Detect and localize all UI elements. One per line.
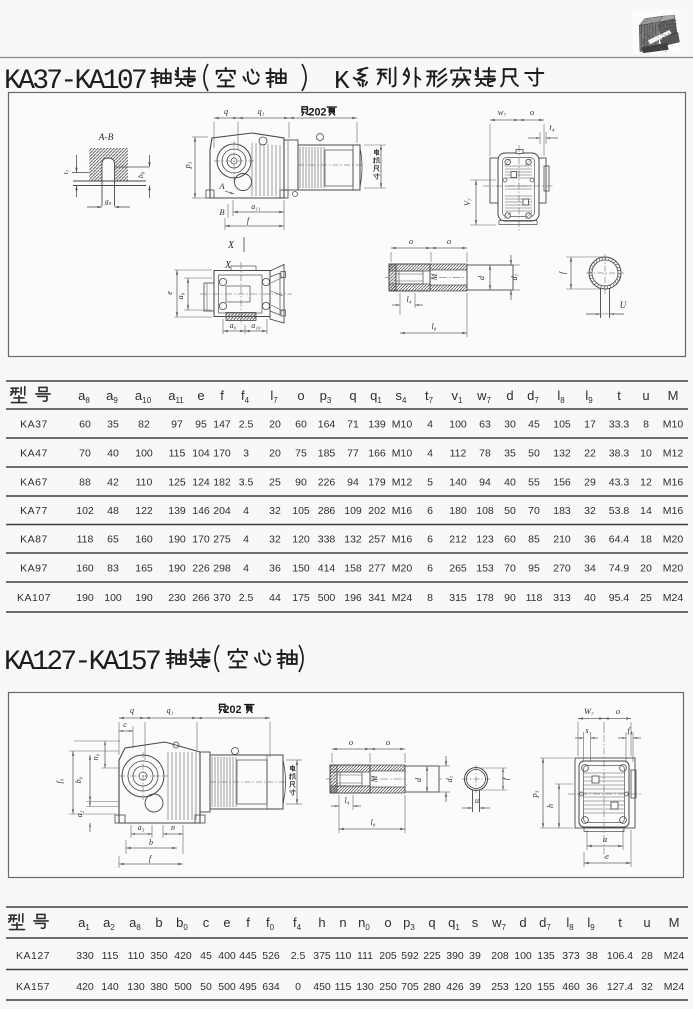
svg-text:95: 95 — [195, 418, 207, 430]
svg-text:28: 28 — [641, 950, 653, 962]
svg-text:u: u — [642, 388, 649, 403]
svg-text:225: 225 — [423, 950, 441, 962]
svg-text:c: c — [203, 915, 210, 930]
svg-text:M: M — [430, 272, 439, 281]
svg-text:2.5: 2.5 — [291, 950, 306, 962]
svg-text:375: 375 — [313, 950, 331, 962]
svg-text:110: 110 — [136, 476, 153, 488]
svg-text:M16: M16 — [663, 476, 684, 488]
svg-text:6: 6 — [427, 534, 433, 546]
svg-text:190: 190 — [76, 592, 94, 604]
svg-text:f: f — [246, 915, 250, 930]
svg-text:b: b — [155, 915, 162, 930]
svg-text:110: 110 — [335, 950, 352, 962]
svg-text:M24: M24 — [663, 592, 684, 604]
svg-text:4: 4 — [243, 505, 249, 517]
svg-text:0: 0 — [295, 981, 301, 993]
svg-text:w₇: w₇ — [498, 107, 507, 117]
svg-text:526: 526 — [262, 950, 280, 962]
svg-text:A: A — [218, 181, 225, 191]
svg-text:77: 77 — [347, 447, 359, 459]
svg-text:104: 104 — [192, 447, 210, 459]
svg-text:n₀: n₀ — [91, 753, 100, 760]
svg-text:112: 112 — [450, 447, 467, 459]
svg-text:KA97: KA97 — [20, 562, 48, 574]
svg-text:36: 36 — [269, 562, 281, 574]
svg-text:t: t — [618, 915, 622, 930]
svg-text:132: 132 — [553, 447, 571, 459]
svg-text:e: e — [605, 851, 609, 861]
svg-text:u: u — [475, 796, 479, 805]
svg-text:122: 122 — [135, 505, 153, 517]
svg-text:U: U — [620, 300, 627, 310]
svg-text:170: 170 — [192, 534, 210, 546]
svg-text:t: t — [617, 388, 621, 403]
svg-text:139: 139 — [168, 505, 186, 517]
svg-text:108: 108 — [476, 505, 494, 517]
svg-text:B: B — [219, 207, 224, 217]
svg-text:12: 12 — [640, 476, 652, 488]
svg-text:286: 286 — [318, 505, 336, 517]
svg-text:q: q — [130, 706, 134, 715]
svg-text:42: 42 — [107, 476, 119, 488]
svg-text:50: 50 — [200, 981, 212, 993]
svg-text:s: s — [585, 726, 588, 735]
svg-text:160: 160 — [76, 562, 94, 574]
svg-text:22: 22 — [584, 447, 596, 459]
svg-text:705: 705 — [401, 981, 419, 993]
svg-text:90: 90 — [504, 592, 516, 604]
svg-text:4: 4 — [427, 418, 433, 430]
svg-text:153: 153 — [476, 562, 494, 574]
svg-text:495: 495 — [239, 981, 257, 993]
svg-text:500: 500 — [174, 981, 192, 993]
svg-text:204: 204 — [213, 505, 231, 517]
svg-text:45: 45 — [528, 418, 540, 430]
svg-text:a₃: a₃ — [138, 823, 145, 832]
svg-text:2.5: 2.5 — [239, 418, 254, 430]
svg-text:40: 40 — [584, 592, 596, 604]
svg-text:t₄: t₄ — [549, 122, 554, 132]
svg-text:p₃: p₃ — [530, 790, 539, 798]
svg-text:e: e — [165, 291, 174, 295]
svg-text:q₁: q₁ — [258, 107, 265, 116]
svg-text:33.3: 33.3 — [609, 418, 630, 430]
svg-text:147: 147 — [213, 418, 231, 430]
svg-text:110: 110 — [128, 950, 145, 962]
svg-text:170: 170 — [213, 447, 231, 459]
svg-text:90: 90 — [295, 476, 307, 488]
svg-text:M12: M12 — [663, 447, 684, 459]
svg-text:70: 70 — [504, 562, 516, 574]
svg-text:414: 414 — [318, 562, 336, 574]
svg-text:95.4: 95.4 — [609, 592, 630, 604]
svg-text:M: M — [370, 774, 379, 783]
svg-text:o: o — [386, 737, 390, 747]
svg-text:120: 120 — [514, 981, 532, 993]
svg-text:180: 180 — [449, 505, 467, 517]
svg-text:u: u — [643, 915, 650, 930]
svg-text:190: 190 — [135, 592, 153, 604]
svg-text:500: 500 — [218, 981, 236, 993]
svg-text:M: M — [668, 388, 679, 403]
svg-text:V₇: V₇ — [463, 198, 472, 206]
svg-text:70: 70 — [79, 447, 91, 459]
svg-text:a₁₁: a₁₁ — [251, 202, 261, 211]
svg-text:298: 298 — [213, 562, 231, 574]
svg-text:88: 88 — [79, 476, 91, 488]
svg-text:226: 226 — [192, 562, 210, 574]
svg-text:190: 190 — [168, 534, 186, 546]
svg-text:253: 253 — [491, 981, 509, 993]
svg-text:KA127-KA157: KA127-KA157 — [4, 647, 160, 678]
svg-text:156: 156 — [553, 476, 571, 488]
svg-text:140: 140 — [101, 981, 119, 993]
svg-text:KA87: KA87 — [20, 534, 48, 546]
svg-text:164: 164 — [318, 418, 336, 430]
svg-text:2.5: 2.5 — [239, 592, 254, 604]
svg-text:115: 115 — [169, 447, 186, 459]
svg-text:KA157: KA157 — [16, 981, 50, 993]
svg-text:e: e — [223, 915, 230, 930]
svg-text:q₁: q₁ — [167, 706, 174, 715]
svg-text:48: 48 — [107, 505, 119, 517]
svg-text:o: o — [447, 236, 451, 246]
svg-text:190: 190 — [168, 562, 186, 574]
svg-text:20: 20 — [640, 562, 652, 574]
svg-text:275: 275 — [213, 534, 231, 546]
svg-text:230: 230 — [168, 592, 186, 604]
svg-text:14: 14 — [640, 505, 652, 517]
svg-text:150: 150 — [292, 562, 310, 574]
svg-text:h: h — [318, 915, 325, 930]
svg-text:4: 4 — [243, 534, 249, 546]
svg-text:l₈: l₈ — [370, 818, 375, 827]
svg-text:140: 140 — [449, 476, 467, 488]
svg-text:39: 39 — [469, 950, 481, 962]
svg-text:6: 6 — [427, 505, 433, 517]
svg-text:25: 25 — [269, 476, 281, 488]
svg-text:373: 373 — [562, 950, 580, 962]
svg-text:71: 71 — [347, 418, 359, 430]
svg-text:420: 420 — [76, 981, 94, 993]
svg-text:118: 118 — [77, 534, 94, 546]
svg-text:315: 315 — [449, 592, 467, 604]
svg-text:202: 202 — [368, 505, 386, 517]
svg-text:105: 105 — [292, 505, 310, 517]
svg-text:127.4: 127.4 — [607, 981, 633, 993]
svg-text:f₄: f₄ — [627, 726, 632, 735]
svg-text:124: 124 — [192, 476, 210, 488]
svg-text:32: 32 — [584, 505, 596, 517]
svg-text:KA67: KA67 — [20, 476, 48, 488]
svg-text:212: 212 — [449, 534, 467, 546]
svg-text:t₇: t₇ — [61, 169, 70, 174]
svg-text:KA47: KA47 — [20, 447, 48, 459]
svg-text:160: 160 — [135, 534, 153, 546]
svg-text:105: 105 — [553, 418, 571, 430]
svg-text:63: 63 — [479, 418, 491, 430]
svg-text:6: 6 — [427, 562, 433, 574]
svg-text:94: 94 — [479, 476, 491, 488]
svg-text:125: 125 — [168, 476, 186, 488]
svg-text:123: 123 — [476, 534, 494, 546]
svg-text:M16: M16 — [392, 534, 413, 546]
svg-text:185: 185 — [318, 447, 336, 459]
svg-text:257: 257 — [368, 534, 386, 546]
svg-text:38.3: 38.3 — [609, 447, 630, 459]
svg-text:39: 39 — [469, 981, 481, 993]
svg-text:M24: M24 — [664, 950, 685, 962]
svg-text:370: 370 — [213, 592, 231, 604]
svg-text:o: o — [530, 107, 534, 117]
svg-text:W₇: W₇ — [584, 706, 594, 716]
svg-text:82: 82 — [138, 418, 150, 430]
svg-text:338: 338 — [318, 534, 336, 546]
svg-text:e: e — [197, 388, 204, 403]
svg-text:36: 36 — [586, 981, 598, 993]
svg-text:60: 60 — [504, 534, 516, 546]
svg-text:420: 420 — [174, 950, 192, 962]
svg-text:111: 111 — [357, 950, 373, 962]
svg-text:g₈: g₈ — [105, 197, 112, 206]
svg-text:390: 390 — [446, 950, 464, 962]
svg-text:146: 146 — [192, 505, 210, 517]
svg-text:M24: M24 — [392, 592, 413, 604]
svg-text:29: 29 — [584, 476, 596, 488]
svg-text:n: n — [339, 915, 346, 930]
svg-text:95: 95 — [528, 562, 540, 574]
svg-text:115: 115 — [335, 981, 352, 993]
svg-text:130: 130 — [356, 981, 374, 993]
svg-text:450: 450 — [313, 981, 331, 993]
svg-text:100: 100 — [449, 418, 467, 430]
svg-text:b: b — [149, 838, 153, 847]
svg-text:32: 32 — [269, 534, 281, 546]
svg-text:4: 4 — [243, 562, 249, 574]
svg-text:3: 3 — [243, 447, 249, 459]
svg-text:10: 10 — [640, 447, 652, 459]
svg-text:M16: M16 — [392, 505, 413, 517]
svg-text:135: 135 — [537, 950, 555, 962]
svg-text:o: o — [616, 706, 620, 716]
svg-text:M20: M20 — [392, 562, 413, 574]
svg-text:83: 83 — [107, 562, 119, 574]
svg-text:M12: M12 — [392, 476, 413, 488]
svg-text:226: 226 — [318, 476, 336, 488]
svg-text:60: 60 — [79, 418, 91, 430]
svg-text:M10: M10 — [392, 447, 413, 459]
svg-text:182: 182 — [213, 476, 231, 488]
svg-text:b₀: b₀ — [74, 776, 83, 783]
svg-text:44: 44 — [269, 592, 281, 604]
svg-text:32: 32 — [269, 505, 281, 517]
svg-text:20: 20 — [269, 447, 281, 459]
svg-text:350: 350 — [150, 950, 168, 962]
svg-text:132: 132 — [344, 534, 362, 546]
svg-text:d₇: d₇ — [445, 775, 454, 782]
svg-text:202: 202 — [223, 704, 241, 716]
svg-text:8: 8 — [427, 592, 433, 604]
svg-text:f: f — [220, 388, 224, 403]
svg-text:65: 65 — [107, 534, 119, 546]
svg-text:A-B: A-B — [98, 133, 114, 143]
svg-text:l₄: l₄ — [344, 796, 349, 805]
svg-text:40: 40 — [107, 447, 119, 459]
svg-text:592: 592 — [401, 950, 419, 962]
svg-text:KA77: KA77 — [20, 505, 48, 517]
svg-text:118: 118 — [526, 592, 543, 604]
svg-text:a₂: a₂ — [75, 810, 84, 817]
svg-text:KA107: KA107 — [17, 592, 51, 604]
svg-text:341: 341 — [368, 592, 386, 604]
svg-text:106.4: 106.4 — [607, 950, 633, 962]
svg-text:q: q — [224, 107, 228, 116]
svg-text:h: h — [546, 804, 555, 808]
svg-text:100: 100 — [104, 592, 122, 604]
svg-text:120: 120 — [292, 534, 310, 546]
svg-text:20: 20 — [269, 418, 281, 430]
svg-text:M16: M16 — [663, 505, 684, 517]
svg-text:30: 30 — [504, 418, 516, 430]
svg-text:445: 445 — [239, 950, 257, 962]
svg-text:40: 40 — [504, 476, 516, 488]
svg-text:M: M — [669, 915, 680, 930]
svg-text:400: 400 — [218, 950, 236, 962]
svg-text:166: 166 — [368, 447, 386, 459]
svg-text:270: 270 — [553, 562, 571, 574]
svg-text:426: 426 — [446, 981, 464, 993]
svg-text:460: 460 — [562, 981, 580, 993]
svg-text:97: 97 — [171, 418, 183, 430]
svg-text:74.9: 74.9 — [609, 562, 630, 574]
svg-text:l₄: l₄ — [406, 295, 411, 304]
svg-text:18: 18 — [640, 534, 652, 546]
svg-text:330: 330 — [76, 950, 94, 962]
svg-text:85: 85 — [528, 534, 540, 546]
svg-text:208: 208 — [491, 950, 509, 962]
svg-text:158: 158 — [344, 562, 362, 574]
svg-text:a₁₀: a₁₀ — [251, 321, 261, 330]
svg-text:45: 45 — [200, 950, 212, 962]
svg-text:l₈: l₈ — [431, 322, 436, 331]
svg-text:M20: M20 — [663, 534, 684, 546]
svg-text:277: 277 — [368, 562, 386, 574]
svg-text:202: 202 — [308, 107, 326, 119]
svg-text:210: 210 — [553, 534, 571, 546]
svg-text:500: 500 — [318, 592, 336, 604]
svg-text:266: 266 — [192, 592, 210, 604]
svg-text:313: 313 — [553, 592, 571, 604]
svg-text:35: 35 — [504, 447, 516, 459]
svg-text:o: o — [409, 236, 413, 246]
svg-text:d: d — [506, 388, 513, 403]
svg-text:M10: M10 — [392, 418, 413, 430]
svg-text:32: 32 — [641, 981, 653, 993]
svg-text:175: 175 — [292, 592, 310, 604]
svg-text:8: 8 — [643, 418, 649, 430]
svg-text:p₃: p₃ — [183, 161, 192, 169]
svg-text:280: 280 — [423, 981, 441, 993]
svg-text:5: 5 — [427, 476, 433, 488]
svg-text:250: 250 — [379, 981, 397, 993]
svg-text:b₈: b₈ — [136, 171, 145, 178]
svg-text:100: 100 — [135, 447, 153, 459]
svg-text:205: 205 — [379, 950, 397, 962]
svg-text:102: 102 — [76, 505, 94, 517]
svg-text:50: 50 — [528, 447, 540, 459]
svg-text:M20: M20 — [663, 562, 684, 574]
svg-text:q: q — [349, 388, 356, 403]
svg-text:3.5: 3.5 — [239, 476, 254, 488]
svg-text:K: K — [334, 66, 350, 96]
svg-text:q: q — [428, 915, 435, 930]
svg-text:634: 634 — [262, 981, 280, 993]
svg-text:179: 179 — [368, 476, 386, 488]
svg-text:34: 34 — [584, 562, 596, 574]
svg-text:d₇: d₇ — [510, 273, 519, 280]
svg-text:a₈: a₈ — [176, 292, 185, 299]
svg-text:165: 165 — [135, 562, 153, 574]
svg-text:38: 38 — [586, 950, 598, 962]
svg-text:o: o — [384, 915, 391, 930]
svg-text:139: 139 — [368, 418, 386, 430]
svg-text:o: o — [297, 388, 304, 403]
svg-text:100: 100 — [514, 950, 532, 962]
svg-text:130: 130 — [127, 981, 145, 993]
svg-text:KA37: KA37 — [20, 418, 48, 430]
svg-text:70: 70 — [528, 505, 540, 517]
svg-text:17: 17 — [584, 418, 596, 430]
svg-text:f₀: f₀ — [55, 778, 64, 783]
svg-text:X: X — [227, 240, 235, 251]
svg-text:196: 196 — [344, 592, 362, 604]
svg-text:64.4: 64.4 — [609, 534, 630, 546]
svg-text:n: n — [171, 823, 175, 832]
svg-text:4: 4 — [427, 447, 433, 459]
svg-text:50: 50 — [504, 505, 516, 517]
svg-text:53.8: 53.8 — [609, 505, 630, 517]
svg-text:155: 155 — [537, 981, 555, 993]
svg-text:178: 178 — [476, 592, 494, 604]
svg-text:265: 265 — [449, 562, 467, 574]
svg-text:a: a — [603, 834, 607, 844]
svg-text:55: 55 — [528, 476, 540, 488]
svg-text:75: 75 — [295, 447, 307, 459]
svg-text:109: 109 — [344, 505, 362, 517]
svg-text:c: c — [123, 720, 127, 729]
svg-text:115: 115 — [102, 950, 119, 962]
svg-text:25: 25 — [640, 592, 652, 604]
svg-text:KA127: KA127 — [16, 950, 50, 962]
svg-text:M10: M10 — [663, 418, 684, 430]
svg-text:43.3: 43.3 — [609, 476, 630, 488]
svg-text:o: o — [349, 737, 353, 747]
svg-text:d: d — [519, 915, 526, 930]
svg-text:36: 36 — [584, 534, 596, 546]
svg-text:60: 60 — [295, 418, 307, 430]
svg-text:a₉: a₉ — [230, 321, 237, 330]
svg-text:s: s — [472, 915, 479, 930]
svg-text:78: 78 — [479, 447, 491, 459]
svg-text:35: 35 — [107, 418, 119, 430]
svg-text:380: 380 — [150, 981, 168, 993]
svg-text:183: 183 — [553, 505, 571, 517]
svg-text:94: 94 — [347, 476, 359, 488]
svg-text:M24: M24 — [664, 981, 685, 993]
